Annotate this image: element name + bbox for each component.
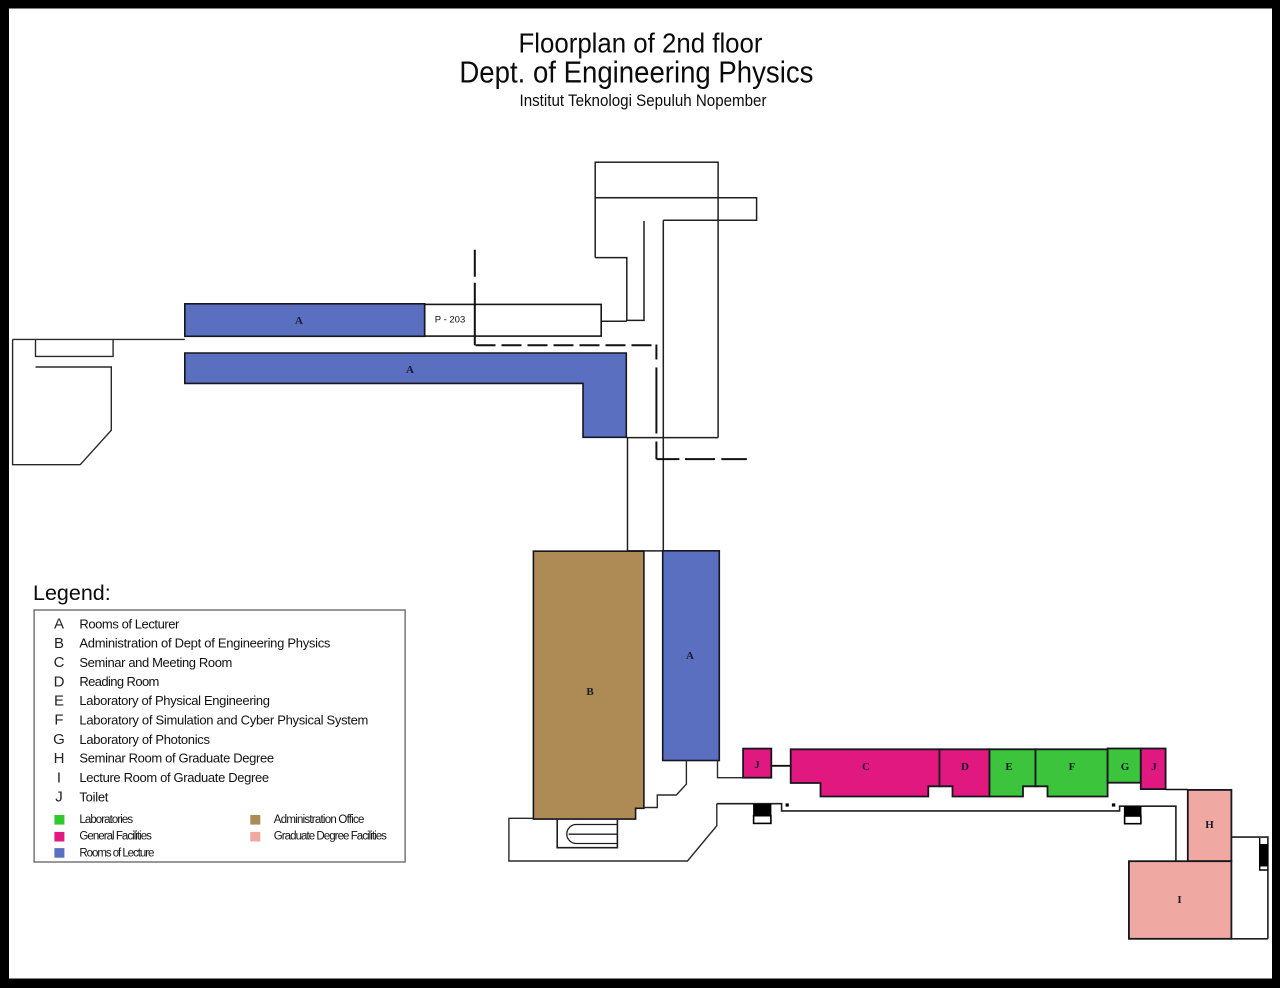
svg-text:A: A bbox=[295, 315, 303, 327]
svg-text:Graduate Degree Facilities: Graduate Degree Facilities bbox=[274, 831, 387, 843]
svg-text:I: I bbox=[57, 769, 61, 786]
svg-text:G: G bbox=[53, 731, 65, 748]
svg-text:Dept. of Engineering Physics: Dept. of Engineering Physics bbox=[459, 56, 813, 90]
svg-text:Toilet: Toilet bbox=[79, 789, 108, 804]
svg-text:P - 203: P - 203 bbox=[435, 315, 465, 326]
svg-text:Seminar Room of Graduate Degre: Seminar Room of Graduate Degree bbox=[79, 751, 274, 766]
svg-text:J: J bbox=[754, 759, 760, 771]
svg-text:G: G bbox=[1121, 761, 1130, 773]
svg-text:Lecture Room of Graduate Degre: Lecture Room of Graduate Degree bbox=[79, 770, 269, 785]
svg-text:Seminar and Meeting Room: Seminar and Meeting Room bbox=[79, 655, 232, 670]
svg-text:H: H bbox=[1205, 819, 1214, 831]
svg-text:Rooms of Lecturer: Rooms of Lecturer bbox=[79, 616, 180, 631]
svg-text:F: F bbox=[54, 712, 63, 729]
svg-text:D: D bbox=[961, 761, 969, 773]
svg-text:E: E bbox=[1005, 761, 1012, 773]
svg-text:A: A bbox=[406, 364, 414, 376]
svg-text:Institut Teknologi Sepuluh Nop: Institut Teknologi Sepuluh Nopember bbox=[520, 91, 767, 110]
svg-text:Reading Room: Reading Room bbox=[79, 674, 159, 689]
svg-text:J: J bbox=[55, 789, 63, 806]
svg-text:B: B bbox=[54, 635, 64, 652]
svg-text:C: C bbox=[862, 761, 870, 773]
svg-text:I: I bbox=[1177, 894, 1181, 906]
svg-text:Laboratories: Laboratories bbox=[79, 814, 133, 826]
svg-text:Laboratory of Physical Enginee: Laboratory of Physical Engineering bbox=[79, 693, 270, 708]
svg-text:A: A bbox=[54, 616, 64, 633]
svg-text:F: F bbox=[1069, 761, 1076, 773]
svg-text:Administration of Dept of Engi: Administration of Dept of Engineering Ph… bbox=[79, 636, 331, 651]
svg-text:Administration Office: Administration Office bbox=[274, 814, 365, 826]
svg-text:J: J bbox=[1151, 761, 1157, 773]
svg-text:C: C bbox=[54, 654, 65, 671]
svg-text:B: B bbox=[586, 686, 594, 698]
svg-text:H: H bbox=[54, 750, 65, 767]
svg-text:Rooms of Lecture: Rooms of Lecture bbox=[79, 847, 154, 859]
svg-text:Legend:: Legend: bbox=[33, 581, 111, 605]
svg-text:Laboratory of Simulation and C: Laboratory of Simulation and Cyber Physi… bbox=[79, 712, 368, 727]
svg-text:General Facilities: General Facilities bbox=[79, 831, 152, 843]
svg-text:A: A bbox=[686, 650, 694, 662]
svg-text:Laboratory of Photonics: Laboratory of Photonics bbox=[79, 732, 210, 747]
svg-text:E: E bbox=[54, 693, 64, 710]
svg-text:D: D bbox=[54, 673, 65, 690]
svg-text:Floorplan of 2nd floor: Floorplan of 2nd floor bbox=[519, 27, 763, 58]
